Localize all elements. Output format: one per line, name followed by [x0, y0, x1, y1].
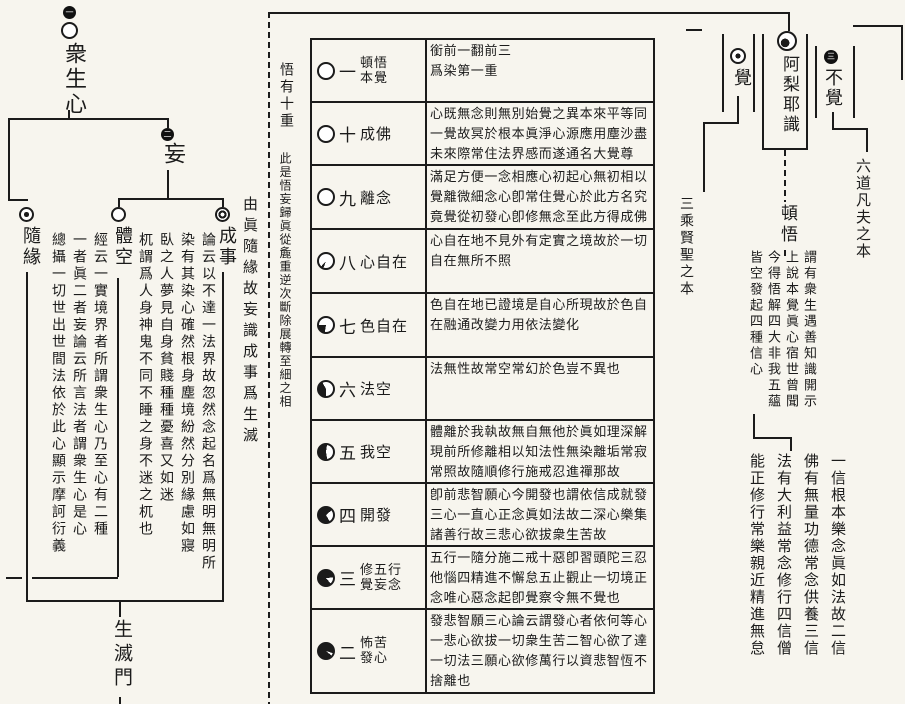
stage-number-badge-1: 一 [63, 6, 76, 19]
stage-header: 十 成佛 [312, 103, 425, 164]
bracket [806, 34, 808, 148]
stage-circle-icon [317, 506, 335, 524]
alaya-symbol-icon [777, 31, 797, 51]
connector [117, 278, 119, 577]
connector [832, 112, 834, 128]
stage-header: 八 心自在 [312, 230, 425, 292]
connector [6, 577, 22, 579]
stage-text: 心自在地不見外有定實之境故於一切自在無所不照 [425, 230, 653, 292]
stage-header: 七 色自在 [312, 294, 425, 356]
connector [32, 577, 118, 579]
connector [901, 25, 903, 80]
connector [866, 128, 868, 152]
stage-text: 五行一隨分施二戒十惡卽習頭陀三忍他惱四精進不懈怠五止觀止一切境正念唯心惡念起卽覺… [425, 547, 653, 608]
stage-title: 離念 [360, 187, 392, 208]
bracket [853, 46, 855, 118]
stage-title: 心自在 [360, 251, 408, 272]
stage-header: 一 頓悟本覺 [312, 40, 425, 101]
connector [703, 122, 739, 124]
connector [119, 697, 121, 704]
note-column: 上說本覺眞心宿世曾聞 [781, 250, 799, 420]
chengshi-circle-icon [215, 207, 230, 222]
quote-column: 染有其染心確然根身塵境紛然分別緣慮如寢 [176, 232, 197, 582]
stage-title: 成佛 [360, 123, 392, 144]
connector [8, 199, 28, 201]
connector [222, 198, 224, 207]
stage-text: 法無性故常空常幻於色豈不異也 [425, 358, 653, 419]
stage-header: 二 怖苦發心 [312, 610, 425, 692]
badge-glyph: 一 [66, 9, 74, 17]
stage-subtitle: 發心 [360, 651, 388, 666]
note-column: 一信根本樂念眞如法故二信 [824, 453, 851, 663]
stage-circle-icon [317, 569, 335, 587]
quote-block-shingion: 經云一實境界者所謂衆生心乃至心有二種 一者眞二者妄論云所言法者謂衆生心是心 總攝… [44, 232, 110, 564]
stage-number: 三 [339, 565, 356, 590]
outer-box-top-border [268, 12, 789, 14]
gate-label: 生滅門 [109, 619, 136, 697]
table-row: 四 開發 卽前悲智願心今開發也謂依信成就發三心一直心正念眞如法故二深心樂集諸善行… [312, 484, 653, 545]
connector [737, 96, 739, 122]
connector [118, 198, 224, 200]
connector [167, 170, 169, 198]
badge-glyph: 三 [827, 53, 835, 61]
connector [790, 437, 792, 451]
stage-title: 頓悟 [360, 56, 388, 71]
connector [26, 272, 28, 600]
quote-column: 一者眞二者妄論云所言法者謂衆生心是心 [68, 232, 89, 564]
branch-suiyuan-label: 隨緣 [17, 226, 43, 272]
quote-column: 杌謂爲人身神鬼不同不睡之身不迷之杌也 [134, 232, 155, 582]
dunwu-label: 頓悟 [775, 204, 800, 248]
stage-circle-icon [317, 443, 335, 461]
connector [68, 110, 70, 118]
note-column: 法有大利益常念修行四信僧 [770, 453, 797, 663]
stage-header: 九 離念 [312, 166, 425, 228]
stage-number-badge-3: 三 [824, 50, 838, 64]
connector [26, 600, 224, 602]
table-row: 二 怖苦發心 發悲智願三心論云謂發心者依何等心一悲心欲拔一切衆生苦二智心欲了達一… [312, 610, 653, 692]
connector [118, 198, 120, 207]
note-column: 今得悟解四大非我五蘊 [763, 250, 781, 420]
stage-text: 色自在地已證境是自心所現故於色自在融通改變力用依法變化 [425, 294, 653, 356]
bracket [753, 34, 755, 112]
table-row: 六 法空 法無性故常空常幻於色豈不異也 [312, 358, 653, 419]
tikong-circle-icon [111, 207, 126, 222]
intro-head: 悟有十重 [276, 62, 296, 132]
table-row: 十 成佛 心既無念則無別始覺之異本來平等同一覺故冥於根本眞淨心源應用塵沙盡未來際… [312, 103, 653, 164]
stage-title: 修五行 [360, 563, 402, 578]
stage-number: 二 [339, 639, 356, 664]
stage-text: 心既無念則無別始覺之異本來平等同一覺故冥於根本眞淨心源應用塵沙盡未來際常住法界感… [425, 103, 653, 164]
stage-number: 五 [339, 439, 356, 464]
note-block-four-faiths: 一信根本樂念眞如法故二信 佛有無量功德常念供養三信 法有大利益常念修行四信僧 能… [741, 453, 851, 663]
bujue-label: 不覺 [819, 68, 845, 114]
jue-symbol-icon [730, 48, 746, 64]
note-column: 佛有無量功德常念供養三信 [797, 453, 824, 663]
table-row: 七 色自在 色自在地已證境是自心所現故於色自在融通改變力用依法變化 [312, 294, 653, 356]
stage-circle-icon [317, 380, 335, 398]
table-row: 一 頓悟本覺 銜前一翻前三 爲染第一重 [312, 40, 653, 101]
stage-circle-icon [317, 252, 335, 270]
stage-title: 我空 [360, 441, 392, 462]
stage-number: 十 [339, 121, 356, 146]
stage-text: 卽前悲智願心今開發也謂依信成就發三心一直心正念眞如法故二深心樂集諸善行故三悲心欲… [425, 484, 653, 545]
stage-circle-icon [317, 316, 335, 334]
stage-text: 銜前一翻前三 爲染第一重 [425, 40, 653, 101]
table-row: 三 修五行覺妄念 五行一隨分施二戒十惡卽習頭陀三忍他惱四精進不懈怠五止觀止一切境… [312, 547, 653, 608]
three-vehicles-label: 三乘賢聖之本 [676, 196, 696, 304]
scanned-page: 一 衆生心 二 妄 隨緣 體空 成事 生滅門 經云一實境界者所謂衆生心乃至心有二… [0, 0, 905, 704]
note-block-faith-intro: 謂有衆生遇善知識開示 上說本覺眞心宿世曾聞 今得悟解四大非我五蘊 皆空發起四種信… [743, 250, 817, 420]
connector [119, 600, 121, 617]
badge-glyph: 二 [164, 131, 172, 139]
bracket [815, 46, 817, 118]
quote-column: 總攝一切世出世間法依於此心顯示摩訶衍義 [47, 232, 68, 564]
stage-circle-icon [317, 125, 335, 143]
stage-number: 六 [339, 376, 356, 401]
connector [753, 437, 792, 439]
alaya-label: 阿梨耶識 [777, 55, 802, 143]
jue-label: 覺 [728, 68, 754, 92]
connector [703, 122, 705, 192]
mind-circle-icon [61, 22, 78, 39]
bracket [722, 34, 724, 112]
connector [8, 118, 169, 120]
connector [788, 12, 790, 31]
stage-header: 五 我空 [312, 421, 425, 482]
connector [222, 272, 224, 600]
stage-number: 八 [339, 249, 356, 274]
quote-column: 論云以不達一法界故忽然念起名爲無明無明所 [197, 232, 218, 582]
stage-header: 四 開發 [312, 484, 425, 545]
stage-text: 體離於我執故無自無他於眞如理深解現前所修離相以知法性無染離垢常寂常照故隨順修行施… [425, 421, 653, 482]
stage-text: 發悲智願三心論云謂發心者依何等心一悲心欲拔一切衆生苦二智心欲了達一切法三願心欲修… [425, 610, 653, 692]
wang-node-label: 妄 [156, 142, 188, 168]
stage-title: 開發 [360, 504, 392, 525]
connector [784, 150, 786, 202]
connector [167, 118, 169, 128]
stage-number: 七 [339, 313, 356, 338]
quote-block-lun: 論云以不達一法界故忽然念起名爲無明無明所 染有其染心確然根身塵境紛然分別緣慮如寢… [130, 232, 218, 582]
stage-circle-icon [317, 642, 335, 660]
six-realms-label: 六道凡夫之本 [853, 158, 874, 266]
connector [686, 29, 702, 31]
table-row: 八 心自在 心自在地不見外有定實之境故於一切自在無所不照 [312, 230, 653, 292]
suiyuan-circle-icon [19, 207, 34, 222]
table-row: 九 離念 滿足方便一念相應心初起心無初相以覺離微細念心卽常住覺心於此方名究竟覺從… [312, 166, 653, 228]
table-row: 五 我空 體離於我執故無自無他於眞如理深解現前所修離相以知法性無染離垢常寂常照故… [312, 421, 653, 482]
stage-title: 法空 [360, 378, 392, 399]
stage-number: 一 [339, 58, 356, 83]
bracket [762, 34, 764, 148]
connector [853, 25, 903, 27]
note-column: 能正修行常樂親近精進無怠 [743, 453, 770, 663]
quote-column: 經云一實境界者所謂衆生心乃至心有二種 [89, 232, 110, 564]
stage-circle-icon [317, 188, 335, 206]
stage-number: 四 [339, 502, 356, 527]
connector [832, 128, 868, 130]
stage-circle-icon [317, 62, 335, 80]
intro-body: 此是悟妄歸眞從麁重逆次斷除展轉至細之相 [277, 152, 294, 442]
stage-subtitle: 本覺 [360, 71, 388, 86]
connector [8, 118, 10, 200]
stage-number-badge-2: 二 [161, 128, 174, 141]
stage-header: 六 法空 [312, 358, 425, 419]
connector [753, 414, 755, 437]
stage-title: 色自在 [360, 315, 408, 336]
note-column: 謂有衆生遇善知識開示 [799, 250, 817, 420]
quote-column: 臥之人夢見自身貧賤種種憂喜又如迷 [155, 232, 176, 582]
note-column: 皆空發起四種信心 [745, 250, 763, 420]
stage-title: 怖苦 [360, 636, 388, 651]
stage-text: 滿足方便一念相應心初起心無初相以覺離微細念心卽常住覺心於此方名究竟覺從初發心卽修… [425, 166, 653, 228]
mind-node-label: 衆生心 [57, 42, 89, 122]
stage-number: 九 [339, 185, 356, 210]
stage-subtitle: 覺妄念 [360, 578, 402, 593]
outer-box-left-border [268, 12, 270, 704]
stage-header: 三 修五行覺妄念 [312, 547, 425, 608]
side-note: 由眞隨緣故妄識成事爲生滅 [240, 196, 261, 464]
